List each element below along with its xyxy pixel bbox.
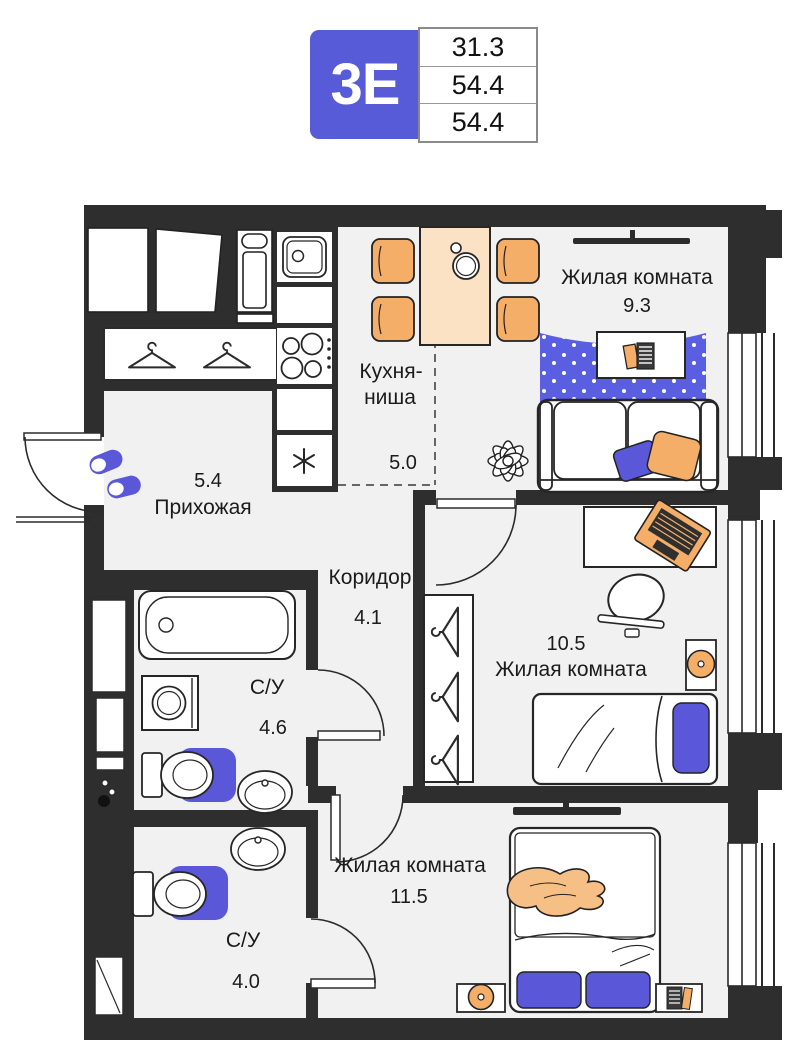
- living1-name-label: Жилая комната: [561, 266, 713, 289]
- hallway-name-label: Прихожая: [154, 496, 251, 519]
- kitchen-name-label-line2: ниша: [364, 386, 416, 409]
- living3-name-label: Жилая комната: [334, 854, 486, 877]
- kitchen-name-label-line1: Кухня-: [359, 360, 422, 383]
- kitchen-sink-icon: [283, 237, 326, 277]
- bathroom1-area-label: 4.6: [259, 717, 287, 739]
- wardrobe: [424, 595, 473, 784]
- plant-icon: [488, 441, 528, 481]
- floor-plan-page: 3Е 31.3 54.4 54.4: [0, 0, 800, 1051]
- corridor-area-label: 4.1: [354, 607, 382, 629]
- window-living3: [728, 843, 756, 986]
- toilet-icon: [133, 866, 228, 920]
- chair-icon: [372, 297, 414, 341]
- facade-lines: [762, 333, 774, 986]
- chair-icon: [372, 239, 414, 283]
- sink-icon: [231, 828, 285, 870]
- pillow: [517, 972, 581, 1008]
- bathroom1-name-label: С/У: [250, 676, 285, 699]
- floor-plan: Жилая комната 9.3 Кухня- ниша 5.0 5.4 Пр…: [0, 0, 800, 1051]
- books-icon: [667, 987, 692, 1009]
- hallway-area-label: 5.4: [194, 470, 222, 492]
- books-icon: [623, 343, 654, 369]
- toilet-icon: [142, 748, 236, 802]
- nightstand: [686, 640, 716, 690]
- windows: [728, 333, 774, 986]
- chair-icon: [497, 239, 539, 283]
- kitchen-area-label: 5.0: [389, 452, 417, 474]
- coffee-table: [597, 332, 685, 378]
- kitchen-column: [277, 232, 332, 486]
- hanger-rail: [104, 328, 277, 380]
- living1-area-label: 9.3: [623, 295, 651, 317]
- entry-closet: [88, 228, 273, 323]
- window-living2: [728, 520, 756, 733]
- bathroom2-area-label: 4.0: [232, 971, 260, 993]
- bathtub-icon: [139, 591, 295, 659]
- living2-name-label: Жилая комната: [495, 658, 647, 681]
- nightstand: [457, 984, 505, 1012]
- pillow: [586, 972, 650, 1008]
- nightstand: [656, 984, 702, 1012]
- chair-icon: [497, 297, 539, 341]
- bathroom2-name-label: С/У: [226, 929, 261, 952]
- living2-area-label: 10.5: [547, 633, 586, 655]
- corridor-name-label: Коридор: [329, 566, 412, 589]
- bed-double: [507, 828, 660, 1012]
- pillow: [673, 703, 709, 773]
- living3-area-label: 11.5: [390, 886, 427, 908]
- window-living1: [728, 333, 756, 457]
- washing-machine-icon: [142, 676, 198, 730]
- sink-icon: [238, 771, 292, 813]
- bed-single: [533, 694, 717, 784]
